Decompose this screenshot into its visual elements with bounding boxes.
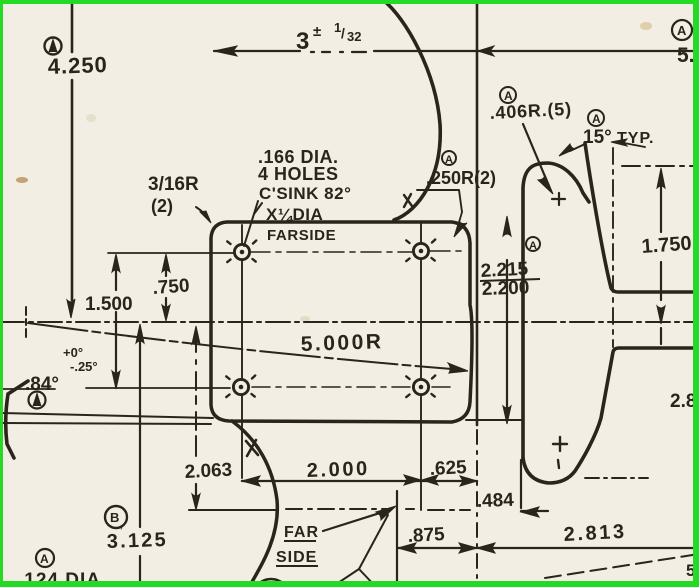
- svg-text:3/16R: 3/16R: [148, 174, 199, 195]
- svg-text:.625: .625: [429, 457, 467, 480]
- svg-text:B: B: [110, 510, 119, 525]
- svg-text:4.250: 4.250: [47, 52, 108, 79]
- svg-text:,: ,: [120, 520, 123, 531]
- svg-text:3.125: 3.125: [106, 529, 168, 553]
- svg-text:32: 32: [347, 29, 361, 44]
- svg-text:2.063: 2.063: [184, 460, 233, 483]
- svg-text:(2): (2): [151, 196, 173, 216]
- svg-text:±: ±: [313, 23, 321, 40]
- svg-text:2.8: 2.8: [670, 391, 696, 412]
- svg-text:3: 3: [296, 28, 309, 55]
- svg-text:X¼DIA: X¼DIA: [266, 205, 323, 224]
- svg-text:FARSIDE: FARSIDE: [267, 227, 336, 244]
- svg-text:A: A: [40, 552, 49, 566]
- svg-text:.484: .484: [476, 490, 514, 512]
- svg-text:2.813: 2.813: [563, 521, 627, 546]
- svg-text:A: A: [445, 154, 453, 166]
- svg-text:A: A: [529, 240, 537, 252]
- svg-text:-.25°: -.25°: [70, 359, 98, 374]
- svg-text:2.200: 2.200: [481, 277, 529, 300]
- svg-text:A: A: [592, 112, 601, 126]
- svg-text:+0°: +0°: [63, 345, 83, 360]
- svg-text:.250R(2): .250R(2): [426, 168, 496, 188]
- svg-text:5.000R: 5.000R: [300, 330, 383, 356]
- svg-text:15°: 15°: [583, 127, 612, 148]
- svg-text:SIDE: SIDE: [276, 549, 317, 566]
- svg-text:FAR: FAR: [284, 524, 319, 541]
- svg-text:2.000: 2.000: [306, 458, 370, 482]
- svg-text:.750: .750: [152, 275, 190, 299]
- svg-text:TYP.: TYP.: [617, 130, 655, 147]
- svg-text:.875: .875: [407, 524, 445, 547]
- svg-text:1.500: 1.500: [85, 294, 133, 315]
- svg-text:A: A: [677, 23, 687, 38]
- svg-text:C'SINK 82°: C'SINK 82°: [259, 184, 351, 203]
- svg-text:5.: 5.: [677, 44, 695, 67]
- svg-text:1.750: 1.750: [641, 233, 692, 258]
- svg-text:4 HOLES: 4 HOLES: [258, 164, 339, 184]
- svg-text:/: /: [341, 25, 345, 41]
